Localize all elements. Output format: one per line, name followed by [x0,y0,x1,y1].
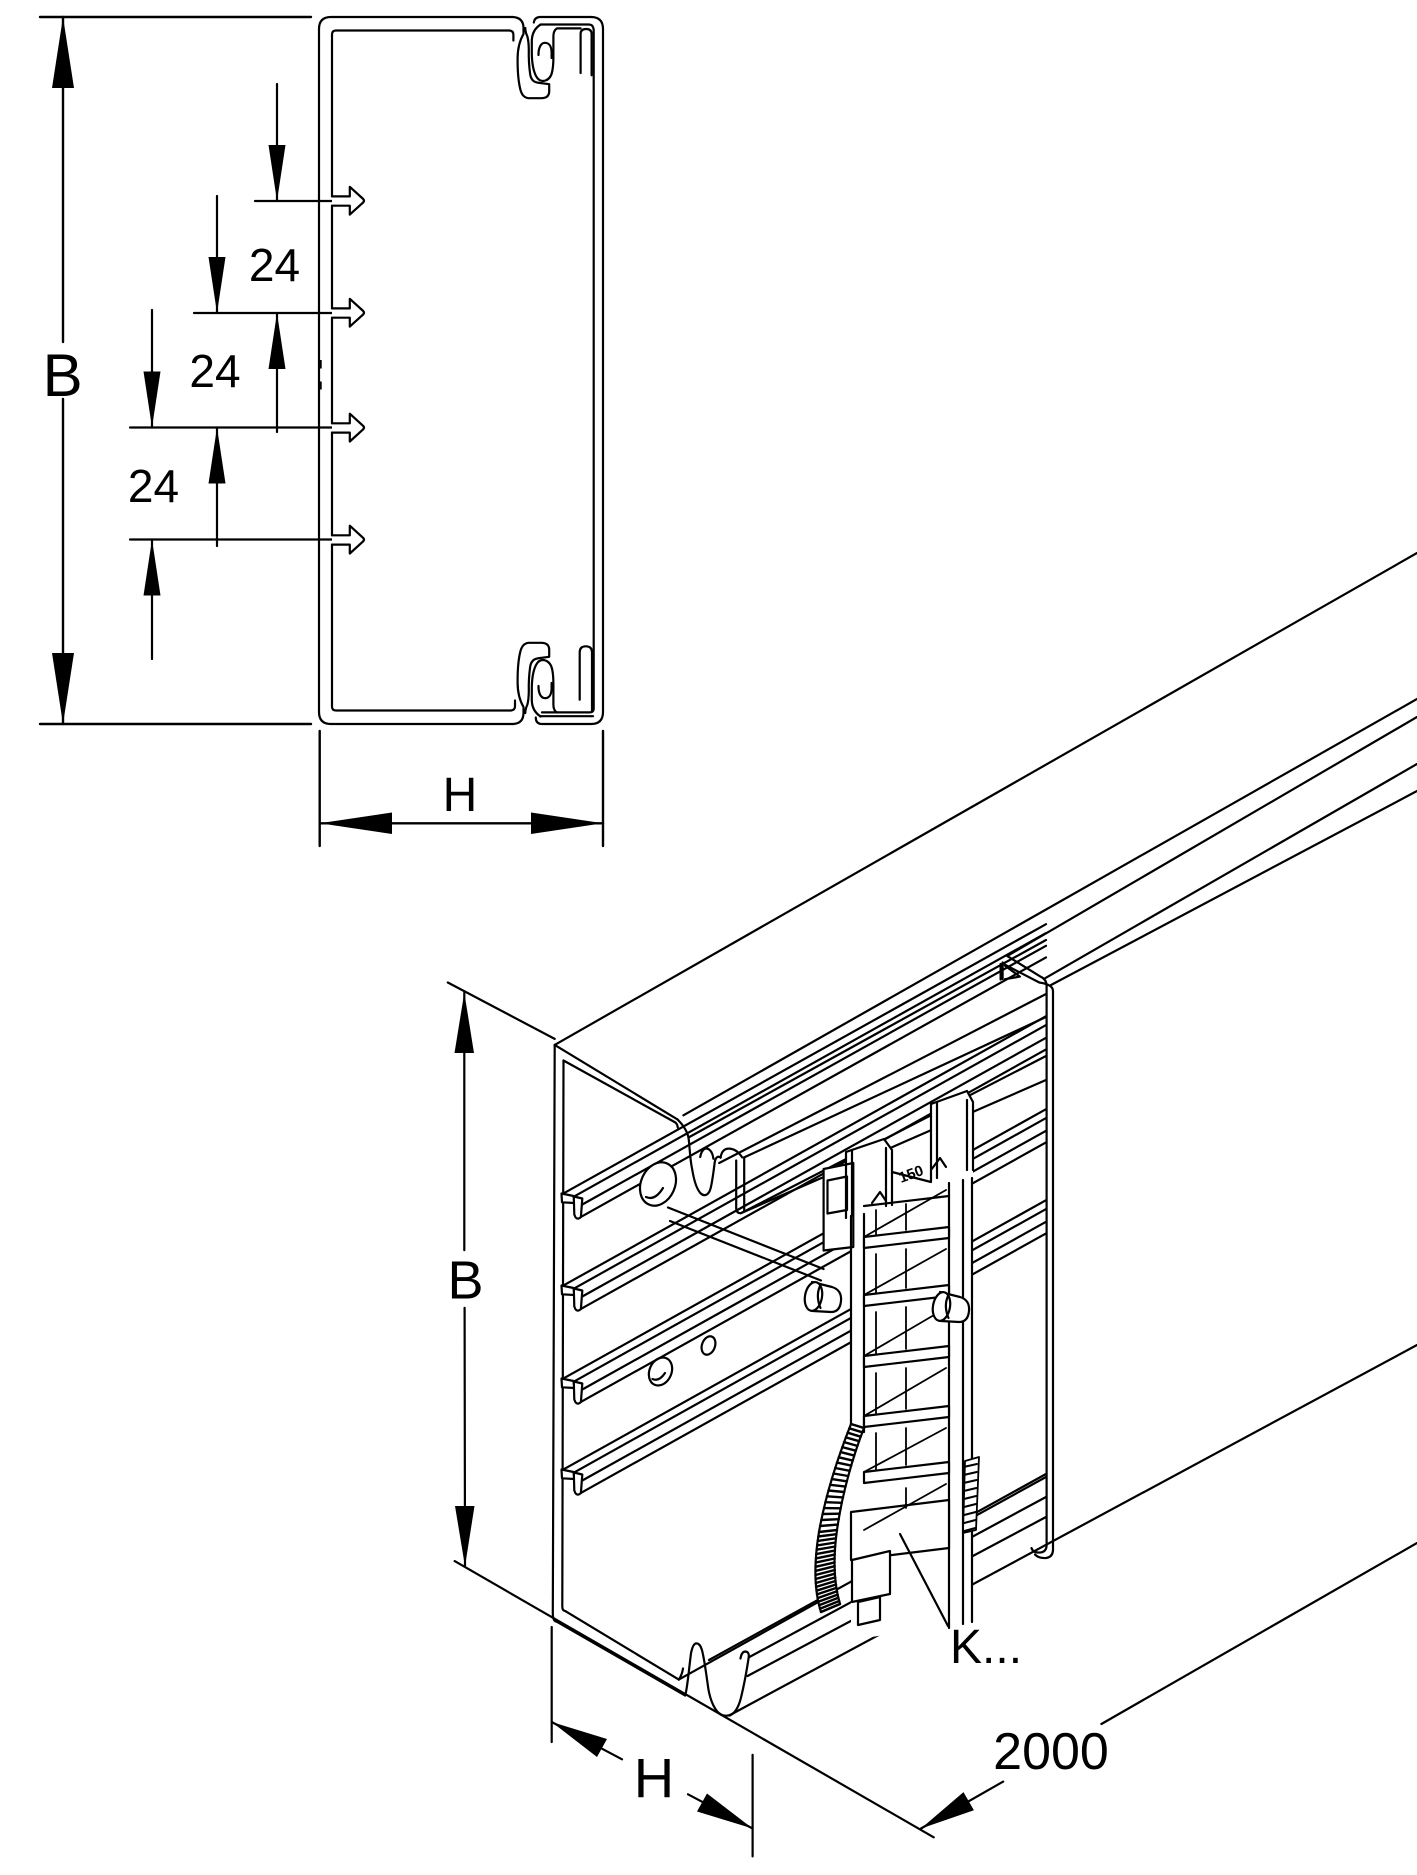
svg-text:24: 24 [128,460,179,512]
svg-text:H: H [443,769,478,822]
svg-text:K...: K... [950,1621,1022,1674]
svg-text:H: H [634,1747,674,1810]
svg-text:B: B [43,342,83,409]
svg-text:24: 24 [189,345,240,397]
svg-text:2000: 2000 [993,1723,1109,1781]
svg-text:24: 24 [249,239,300,291]
svg-text:B: B [447,1250,483,1310]
